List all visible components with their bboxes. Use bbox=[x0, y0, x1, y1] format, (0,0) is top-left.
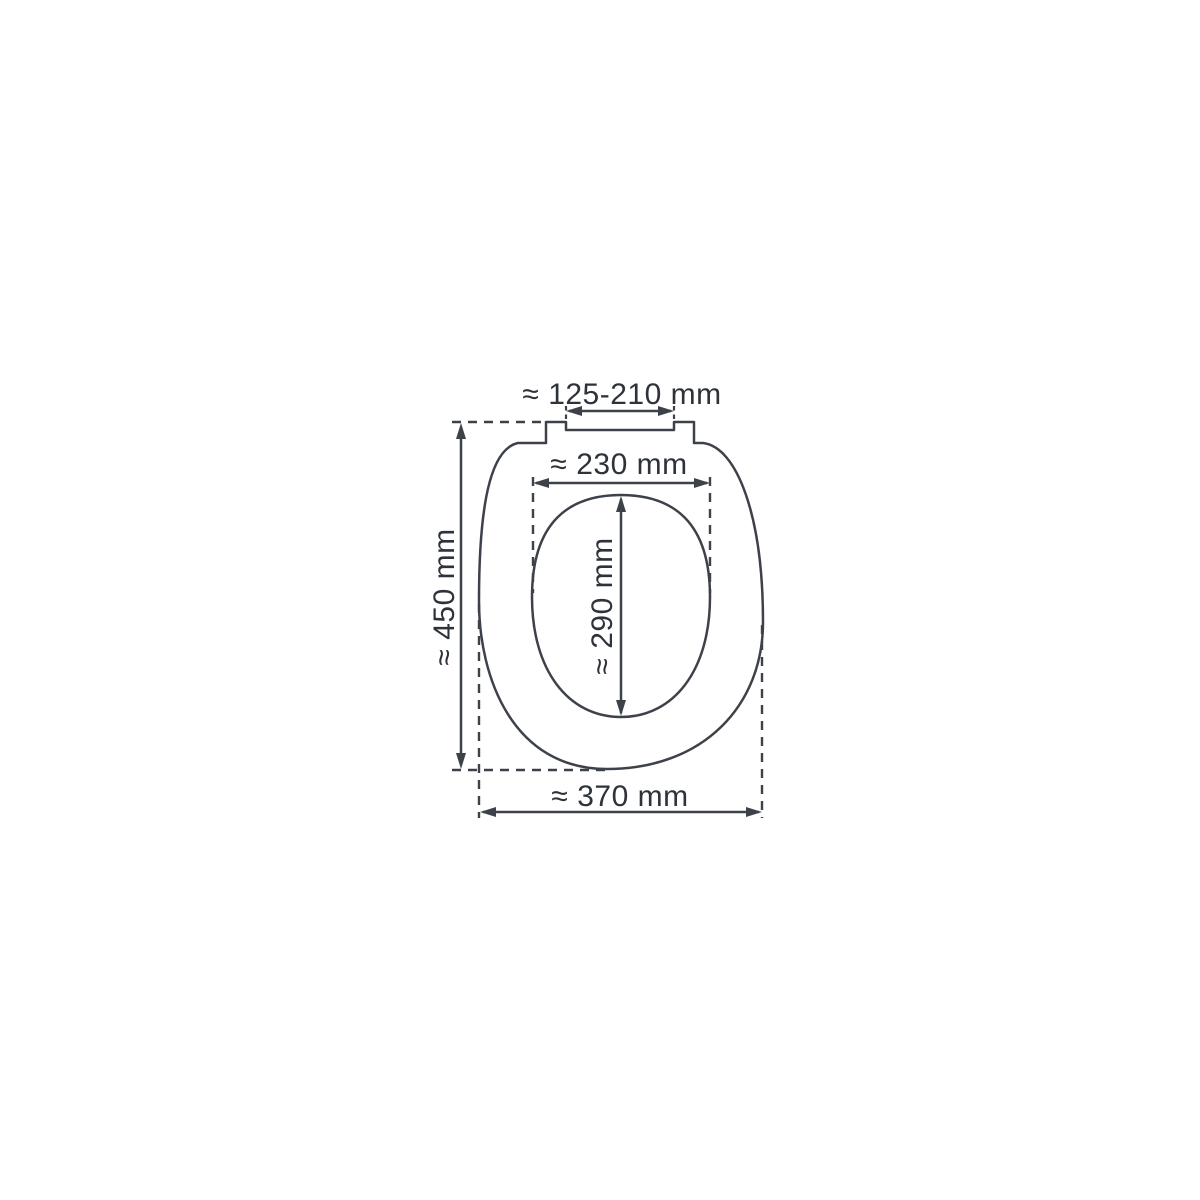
arrowhead-down bbox=[456, 753, 466, 769]
hinge-width-label: ≈ 125-210 mm bbox=[522, 378, 721, 411]
arrowhead-left bbox=[480, 807, 496, 817]
arrowhead-right bbox=[746, 807, 762, 817]
dim-inner-depth: ≈ 290 mm bbox=[586, 496, 626, 716]
outer-width-label: ≈ 370 mm bbox=[551, 780, 688, 813]
inner-depth-label: ≈ 290 mm bbox=[586, 537, 619, 674]
outer-depth-label: ≈ 450 mm bbox=[428, 528, 461, 665]
arrowhead-up bbox=[456, 423, 466, 439]
inner-width-label: ≈ 230 mm bbox=[550, 448, 687, 481]
toilet-seat-dimension-diagram: ≈ 125-210 mm ≈ 230 mm ≈ 290 mm ≈ 450 mm bbox=[0, 0, 1200, 1200]
arrowhead-down bbox=[616, 700, 626, 716]
arrowhead-up bbox=[616, 496, 626, 512]
dimension-drawing-canvas: ≈ 125-210 mm ≈ 230 mm ≈ 290 mm ≈ 450 mm bbox=[0, 0, 1200, 1200]
arrowhead-right bbox=[694, 478, 710, 488]
arrowhead-left bbox=[533, 478, 549, 488]
dim-hinge-width: ≈ 125-210 mm bbox=[522, 378, 721, 422]
